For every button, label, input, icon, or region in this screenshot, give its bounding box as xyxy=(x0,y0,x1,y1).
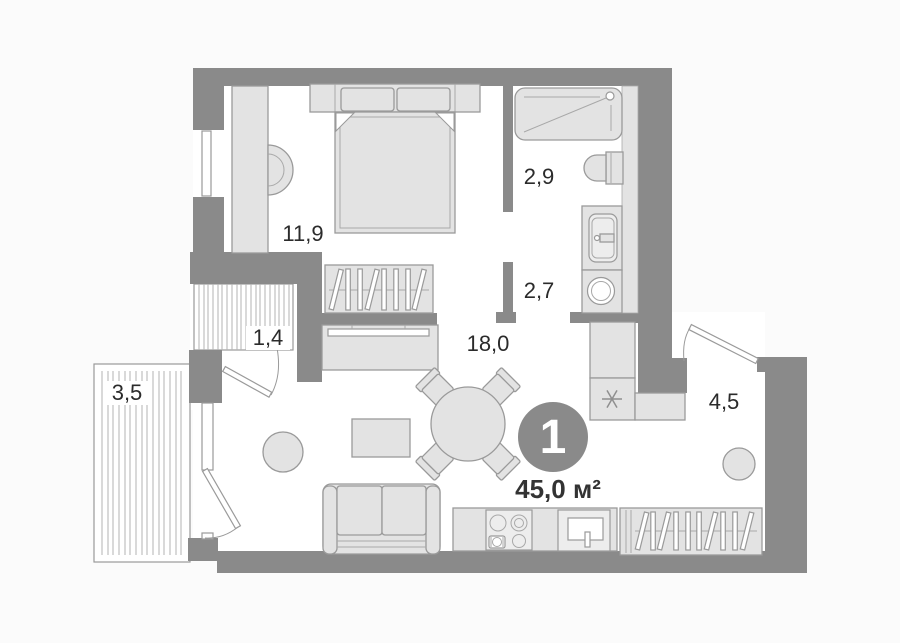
room-label-entry-hall: 4,5 xyxy=(709,389,740,414)
bedroom-window xyxy=(202,131,211,196)
wall-entry-left xyxy=(638,358,687,393)
headboard-shelf xyxy=(310,84,480,112)
total-area-label: 45,0 м² xyxy=(515,474,601,504)
dining-table xyxy=(431,387,505,461)
wall-stub xyxy=(503,262,513,312)
wall-top xyxy=(193,68,672,86)
room-label-corridor: 2,7 xyxy=(524,278,555,303)
bath-side-panel xyxy=(622,86,638,313)
wardrobe xyxy=(325,265,433,313)
room-label-bedroom: 11,9 xyxy=(282,221,323,246)
washing-machine xyxy=(582,270,622,313)
pillow xyxy=(397,88,450,111)
wall-stub-foot xyxy=(496,312,516,323)
balcony-window xyxy=(202,403,213,470)
pillow xyxy=(341,88,394,111)
room-label-living: 18,0 xyxy=(467,331,510,356)
tv-stand xyxy=(322,325,438,370)
room-label-balcony: 3,5 xyxy=(112,380,143,405)
kitchen-sink xyxy=(558,510,610,551)
room-label-bathroom: 2,9 xyxy=(524,164,555,189)
sofa xyxy=(323,484,440,554)
floor-plan: 11,9 2,9 2,7 18,0 1,4 3,5 4,5 1 45,0 м² xyxy=(0,0,900,643)
vanity-sink xyxy=(582,206,622,270)
bathtub xyxy=(515,88,622,140)
toilet xyxy=(584,152,623,184)
floor-plan-page: 11,9 2,9 2,7 18,0 1,4 3,5 4,5 1 45,0 м² xyxy=(0,0,900,643)
desk xyxy=(232,86,268,253)
stove xyxy=(486,510,532,550)
room-label-inner-hall: 1,4 xyxy=(253,325,284,350)
refrigerator xyxy=(590,378,635,420)
wall-left-mid xyxy=(193,197,224,255)
wall-balcony-lower xyxy=(188,538,218,561)
double-bed xyxy=(335,112,455,233)
badge-number: 1 xyxy=(540,411,567,464)
side-counter xyxy=(635,393,685,420)
coffee-table xyxy=(352,419,410,457)
wall-below-wardrobe xyxy=(318,313,437,325)
hanger-wardrobe xyxy=(620,508,762,555)
wall-right-lower xyxy=(765,357,807,573)
wall-left-upper xyxy=(193,68,224,130)
pouf xyxy=(263,432,303,472)
wall-balcony-upper xyxy=(189,350,222,403)
wall-bed-bath xyxy=(503,68,513,212)
pouf xyxy=(723,448,755,480)
wall-right-upper xyxy=(638,86,672,358)
kitchen-cabinet xyxy=(590,322,635,378)
kitchen-row xyxy=(453,508,617,551)
